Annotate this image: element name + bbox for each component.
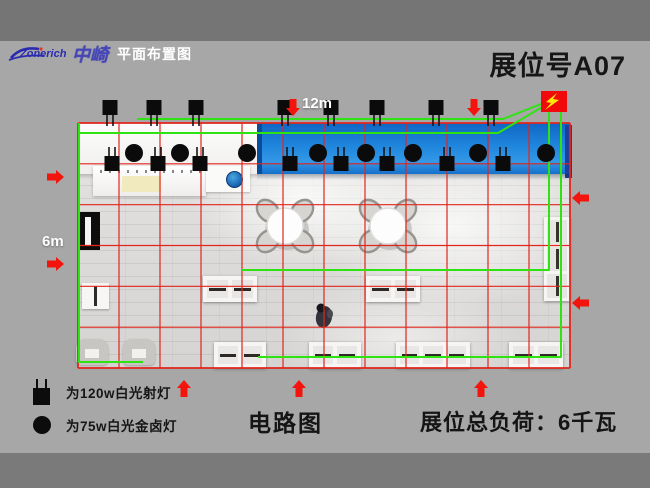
legend-item-halide: 为75w白光金卤灯 — [33, 415, 177, 435]
display-screen — [80, 212, 100, 250]
power-point-icon — [541, 91, 567, 112]
spotlight-icon — [103, 100, 118, 115]
page: { "header": { "logo_text": "Zonerich", "… — [0, 0, 650, 488]
zonerich-logo: Zonerich 中崎 平面布置图 — [8, 44, 192, 64]
zonerich-swoosh-icon: Zonerich — [8, 45, 62, 63]
counter-items — [100, 170, 202, 173]
counter-tray — [122, 176, 161, 192]
top-band — [0, 0, 650, 41]
spotlight-icon — [189, 100, 204, 115]
banner-edge — [257, 123, 262, 174]
armchair — [76, 339, 108, 365]
side-chair — [82, 283, 109, 309]
page-title: 平面布置图 — [117, 44, 192, 64]
legend-label: 为75w白光金卤灯 — [66, 415, 177, 435]
width-dimension-label: 12m — [302, 95, 332, 112]
armchair — [123, 339, 155, 365]
halide-circle-icon — [33, 416, 57, 434]
spotlight-square-icon — [33, 379, 57, 405]
spotlight-icon — [370, 100, 385, 115]
legend: 为120w白光射灯 为75w白光金卤灯 — [33, 379, 177, 442]
flow-arrow-icon — [177, 380, 191, 397]
flow-arrow-icon — [47, 170, 64, 184]
flow-arrow-icon — [572, 191, 589, 205]
bottom-band — [0, 453, 650, 488]
booth-number: 展位号A07 — [489, 44, 626, 83]
flow-arrow-icon — [286, 99, 300, 116]
spotlight-icon — [278, 100, 293, 115]
blue-banner-wall — [257, 123, 570, 174]
height-dimension-label: 6m — [42, 233, 64, 250]
banner-edge-right — [565, 125, 572, 178]
flow-arrow-icon — [572, 296, 589, 310]
water-dispenser — [226, 171, 243, 188]
lightning-bolt-icon — [545, 93, 559, 110]
flow-arrow-icon — [47, 257, 64, 271]
display-stand — [309, 342, 361, 368]
display-stand — [396, 342, 470, 368]
shelf-cabinet — [544, 217, 570, 301]
legend-label: 为120w白光射灯 — [66, 382, 171, 402]
spotlight-icon — [429, 100, 444, 115]
display-stand — [509, 342, 563, 368]
logo-text: Zonerich — [20, 48, 66, 60]
flow-arrow-icon — [292, 380, 306, 397]
total-load-label: 展位总负荷：6千瓦 — [420, 405, 617, 437]
display-stand — [214, 342, 266, 368]
spotlight-icon — [484, 100, 499, 115]
legend-item-spotlight: 为120w白光射灯 — [33, 379, 177, 405]
display-stand — [203, 276, 257, 302]
logo-cn-text: 中崎 — [72, 41, 108, 67]
wire-line — [137, 100, 551, 119]
display-stand — [366, 276, 420, 302]
flow-arrow-icon — [474, 380, 488, 397]
spotlight-icon — [147, 100, 162, 115]
banner-shadow — [257, 174, 570, 180]
flow-arrow-icon — [467, 99, 481, 116]
circuit-diagram-label: 电路图 — [248, 404, 323, 438]
